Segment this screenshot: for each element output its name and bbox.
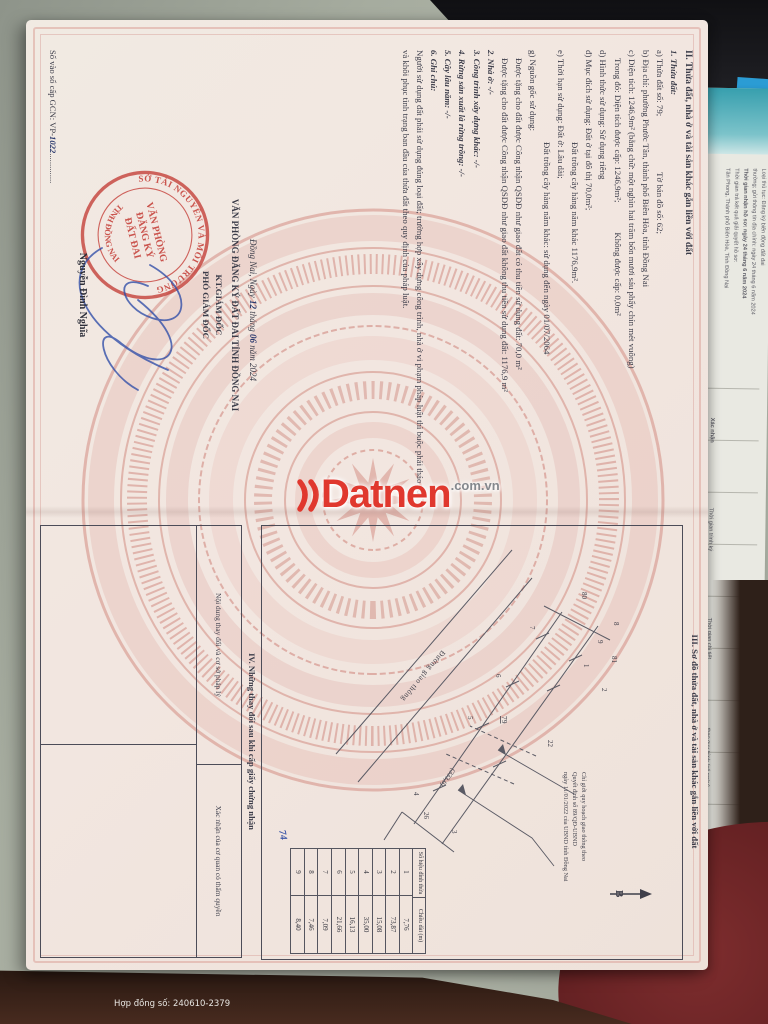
kt-giam-doc: KT.GIÁM ĐỐC [214, 115, 224, 495]
line-area: c) Diện tích: 1246,9m² (bằng chữ: một ng… [625, 50, 639, 498]
item-4-forest: 4. Rừng sản xuất là rừng trồng: -/- [455, 50, 469, 498]
edge-length: 8,40 [291, 896, 304, 953]
slip-line: Loại thủ tục: Đăng ký biến động đất đai [759, 168, 766, 265]
vertex-id: 6 [332, 849, 345, 896]
item-1-heading: 1. Thửa đất: [667, 50, 681, 498]
handwritten-mark: 74 [276, 829, 289, 841]
parcel-number: a) Thửa đất số: 79; [655, 50, 665, 116]
table-row: 435,00 [358, 848, 372, 954]
edge-length: 15,08 [373, 896, 386, 953]
site-watermark: Datnen .com.vn [293, 474, 500, 518]
vertex-4: 4 [412, 792, 420, 796]
table-row: 87,46 [304, 848, 318, 954]
signer-name: Nguyễn Đình Nghĩa [77, 130, 88, 460]
changes-col1-empty [41, 526, 196, 745]
watermark-suffix: .com.vn [451, 478, 500, 493]
vertex-1: 1 [582, 664, 590, 668]
neighbor-22: 22 [546, 740, 554, 748]
vertex-id: 4 [359, 849, 372, 896]
map-sheet-number: Tờ bản đồ số: 62; [655, 172, 665, 234]
watermark-brand: Datnen [321, 474, 451, 514]
area-not-granted: Không được cấp: 0,0m² [613, 232, 623, 315]
north-label: B [613, 890, 625, 898]
edge-length: 35,00 [359, 896, 372, 953]
vertex-table-header: Số hiệu đỉnh thửa Chiều dài (m) [413, 848, 427, 954]
table-row: 77,09 [317, 848, 331, 954]
vertex-2: 2 [600, 688, 608, 692]
changes-table-body [41, 526, 196, 957]
line-origin-heading: g) Nguồn gốc sử dụng: [526, 50, 540, 498]
line-use-term-2: Đất trồng cây hàng năm khác: sử dụng đến… [540, 50, 554, 498]
changes-col1-header: Nội dung thay đổi và cơ sở pháp lý [197, 526, 241, 765]
notes-text: Người sử dụng đất phải sử dụng đúng loại… [399, 50, 427, 498]
item-3-construction: 3. Công trình xây dựng khác: -/- [470, 50, 484, 498]
edge-length: 16,13 [346, 896, 359, 953]
line-use-purpose-2: Đất trồng cây hàng năm khác 1176,9m². [568, 50, 582, 498]
edge-length: 7,76 [400, 896, 413, 953]
slip-line: Tân Phong, Thành phố Biên Hòa, Tỉnh Đồng… [723, 168, 731, 289]
issuing-office: VĂN PHÒNG ĐĂNG KÝ ĐẤT ĐAI TỈNH ĐỒNG NAI [230, 115, 240, 495]
parcel-number-label: 79 [500, 716, 509, 724]
neighbor-26: 26 [422, 812, 430, 820]
vertex-3: 3 [450, 830, 458, 834]
date-line: Đồng Nai, Ngày 12 tháng 06 năm 2024 [248, 140, 258, 480]
line-use-purpose-1: đ) Mục đích sử dụng: Đất ở tại đô thị 70… [582, 50, 596, 498]
neighbor-81: 81 [610, 656, 618, 664]
vertex-id: 8 [305, 849, 318, 896]
changes-table-header: Nội dung thay đổi và cơ sở pháp lý Xác n… [196, 526, 241, 957]
slip-line: Thời gian trình ký [707, 508, 714, 552]
line-use-term-1: e) Thời hạn sử dụng: Đất ở: Lâu dài; [554, 50, 568, 498]
datnen-logo-icon [293, 479, 319, 518]
annotation-line1: Chỉ giới quy hoạch giao thông theo [579, 772, 588, 944]
book-entry-number: Số vào sổ cấp GCN: VP-1022.............. [48, 50, 58, 183]
date-day-handwritten: 12 [248, 300, 258, 309]
item-6-notes-heading: 6. Ghi chú: [427, 50, 441, 498]
contract-number-overlay: Hợp đồng số: 240610-2379 [114, 999, 230, 1009]
edge-length: 73,87 [386, 896, 399, 953]
vertex-id: 1 [400, 849, 413, 896]
vertex-id: 2 [386, 849, 399, 896]
section-2-title: II. Thửa đất, nhà ở và tài sản khác gắn … [681, 50, 695, 498]
annotation-line2: Quyết định số 89/QĐ-UBND [570, 772, 579, 944]
road-label: Đường giao thông [399, 649, 447, 704]
book-entry-label: Số vào sổ cấp GCN: VP- [48, 50, 58, 136]
vertex-id: 7 [318, 849, 331, 896]
vertex-7: 7 [528, 626, 536, 630]
line-origin-1: Được tặng cho đất được Công nhận QSDĐ nh… [512, 50, 526, 498]
neighbor-80: 80 [580, 592, 588, 600]
item-2-house: 2. Nhà ở: -/- [484, 50, 498, 498]
edge-length: 7,46 [305, 896, 318, 953]
book-entry-dots: .............. [48, 153, 58, 183]
changes-table: Nội dung thay đổi và cơ sở pháp lý Xác n… [40, 525, 242, 958]
photo-scene: Loại thủ tục: Đăng ký biến động đất đai … [0, 0, 768, 1024]
line-parcel-number: a) Thửa đất số: 79;Tờ bản đồ số: 62; [653, 50, 667, 498]
date-part: tháng [248, 311, 258, 332]
line-origin-2: Được tặng cho đất được Công nhận QSDĐ nh… [498, 50, 512, 498]
table-row: 98,40 [290, 848, 304, 954]
length-col-header: Chiều dài (m) [414, 898, 426, 953]
date-part: năm 2024 [248, 345, 258, 381]
vertex-id: 5 [346, 849, 359, 896]
line-use-form: d) Hình thức sử dụng: Sử dụng riêng [596, 50, 610, 498]
changes-col2-header: Xác nhận của cơ quan có thẩm quyền [197, 765, 241, 957]
item-5-perennial: 5. Cây lâu năm: -/- [441, 50, 455, 498]
north-arrow-icon: B [610, 889, 652, 899]
line-area-detail: Trong đó: Diện tích được cấp: 1246,9m²;K… [610, 50, 624, 498]
table-row: 17,76 [399, 848, 413, 954]
vertex-col-header: Số hiệu đỉnh thửa [414, 849, 426, 898]
vertex-id: 3 [373, 849, 386, 896]
table-row: 315,08 [372, 848, 386, 954]
date-month-handwritten: 06 [248, 334, 258, 343]
slip-line: Thời gian nhận hồ sơ: ngày 24 tháng 6 nă… [741, 168, 749, 298]
vertex-id: 9 [291, 849, 304, 896]
section-2-block: II. Thửa đất, nhà ở và tài sản khác gắn … [399, 50, 695, 498]
parcel-map-box: 8 9 80 81 1 2 7 6 5 4 3 26 22 79 [261, 525, 683, 960]
table-row: 516,13 [345, 848, 359, 954]
slip-line: Thời gian trả kết quả giải quyết hồ sơ: [732, 168, 739, 262]
book-entry-value-handwritten: 1022 [48, 136, 58, 153]
planning-annotation: Chỉ giới quy hoạch giao thông theo Quyết… [561, 772, 588, 944]
annotation-line3: ngày 11/01/2022 của UBND tỉnh Đồng Nai [561, 772, 570, 944]
table-row: 621,66 [331, 848, 345, 954]
vertex-6: 6 [494, 674, 502, 678]
section-4-title: IV. Những thay đổi sau khi cấp giấy chứn… [247, 525, 257, 958]
vertex-8: 8 [612, 622, 620, 626]
edge-length: 7,09 [318, 896, 331, 953]
section-3-title: III. Sơ đồ thửa đất, nhà ở và tài sản kh… [690, 525, 700, 958]
date-part: Đồng Nai, Ngày [248, 239, 258, 298]
vertex-9: 9 [596, 640, 604, 644]
table-row: 273,87 [385, 848, 399, 954]
edge-length: 21,66 [332, 896, 345, 953]
slip-line: thường; gửi thông tin địa chính: ngày 24… [749, 168, 757, 315]
slip-line: Xác nhận [709, 418, 715, 443]
line-address: b) Địa chỉ: phường Phước Tân, thành phố … [639, 50, 653, 498]
area-granted: Trong đó: Diện tích được cấp: 1246,9m²; [613, 58, 623, 202]
vertex-length-table: Số hiệu đỉnh thửa Chiều dài (m) 17,76 27… [290, 848, 426, 954]
vertex-5: 5 [466, 716, 474, 720]
